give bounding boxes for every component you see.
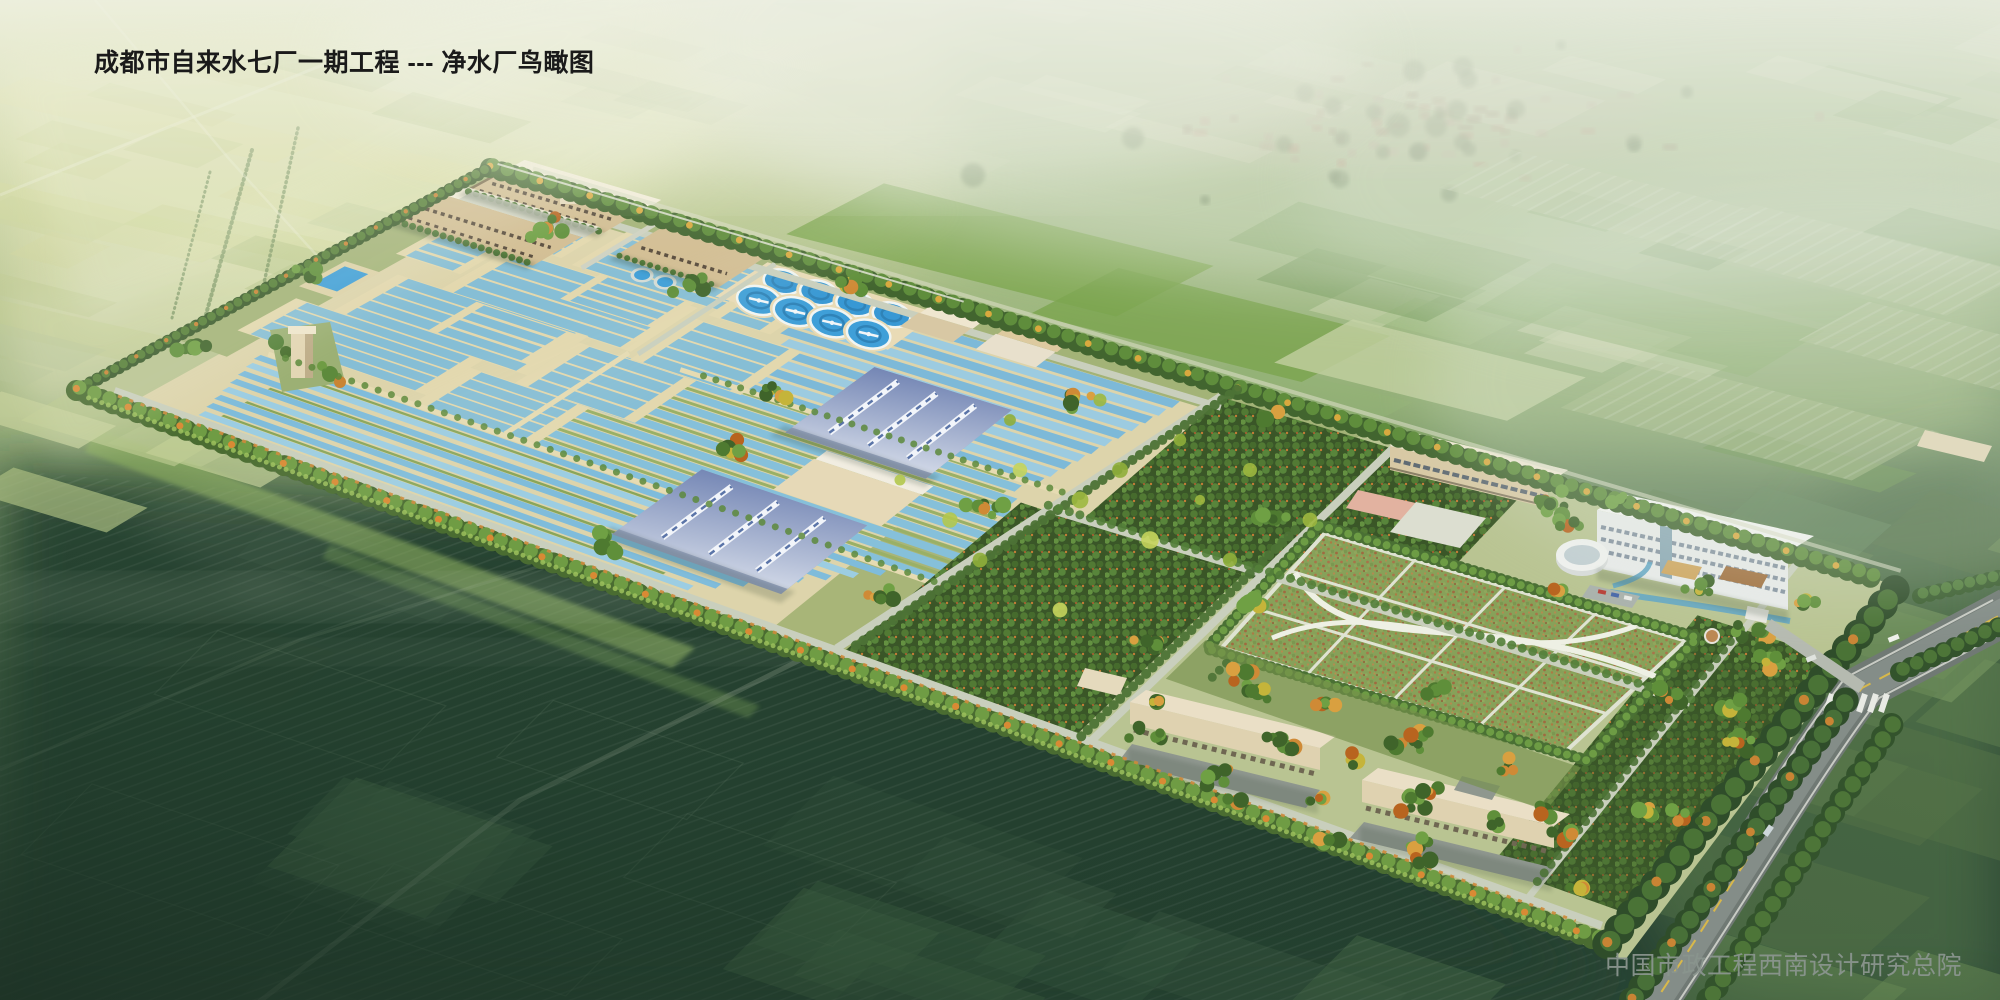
svg-text:中国市政工程西南设计研究总院: 中国市政工程西南设计研究总院 xyxy=(1605,952,1962,980)
svg-text:成都市自来水七厂一期工程 --- 净水厂鸟瞰图: 成都市自来水七厂一期工程 --- 净水厂鸟瞰图 xyxy=(94,48,594,77)
